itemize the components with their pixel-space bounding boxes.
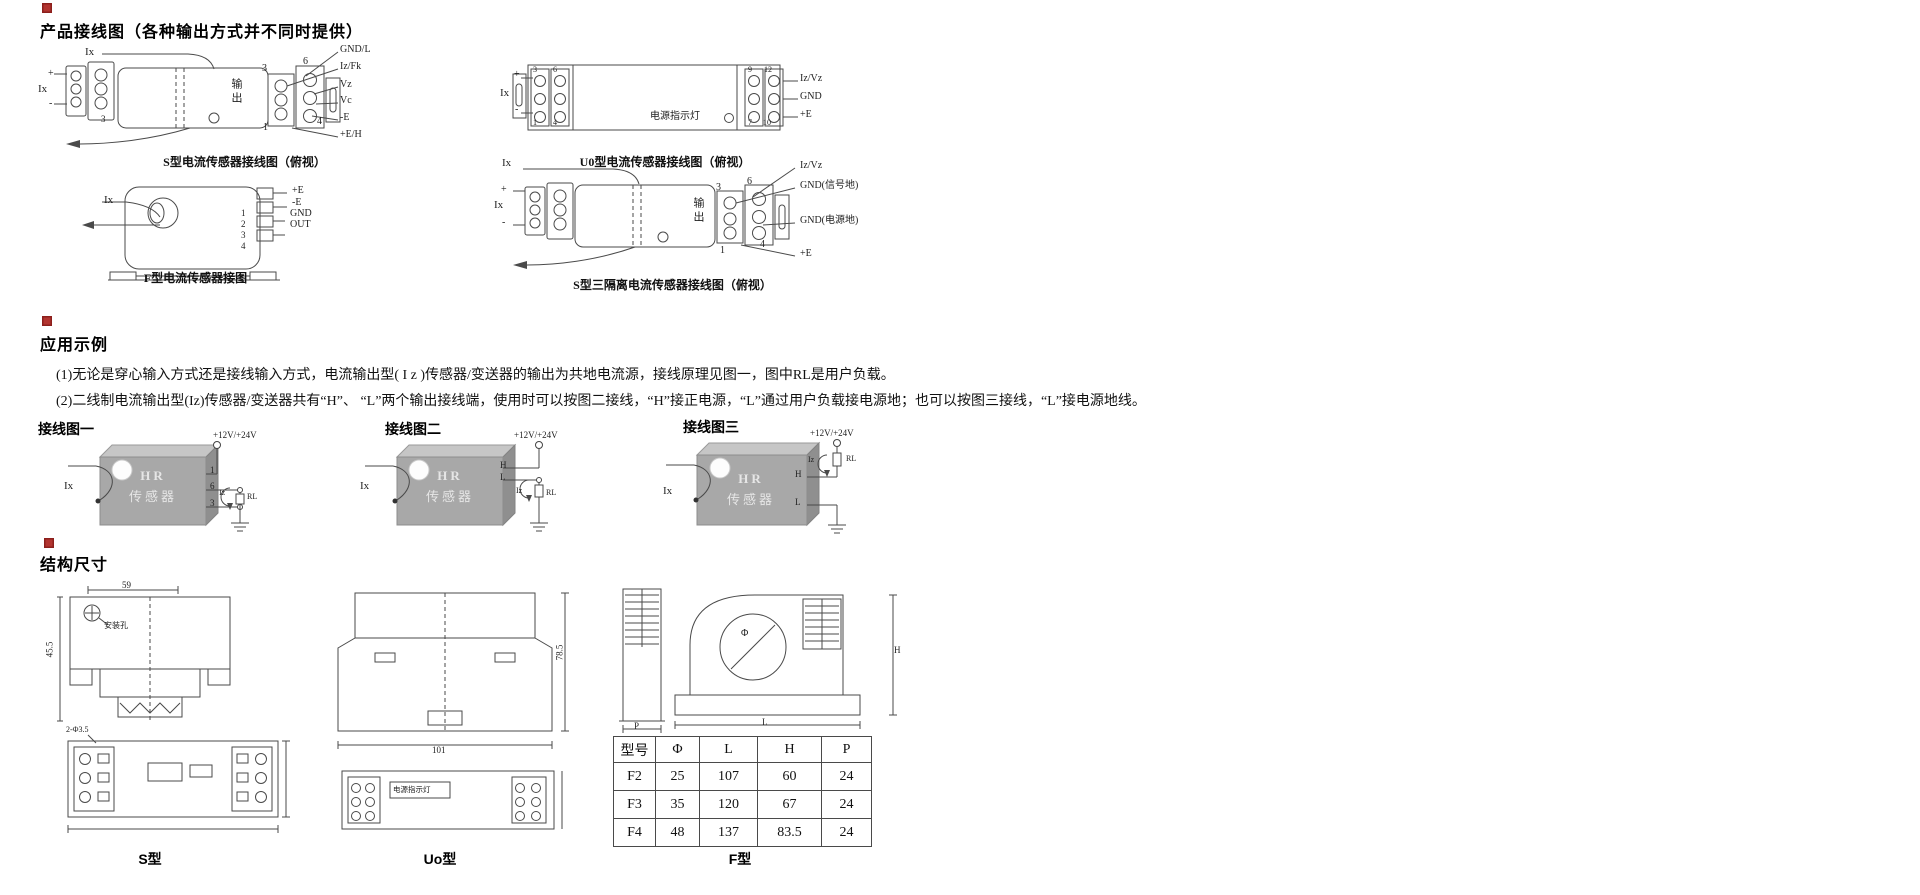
section-title-dimensions: 结构尺寸 xyxy=(40,551,108,575)
pin-label: 12 xyxy=(764,66,772,74)
output-current-label: Iz xyxy=(808,456,814,464)
terminal-label: -E xyxy=(340,113,349,123)
section-marker-icon xyxy=(44,538,54,548)
terminal-label: +E/H xyxy=(340,130,362,140)
current-input-label: Ix xyxy=(494,200,503,211)
minus-terminal-label: - xyxy=(502,218,505,228)
table-cell: F2 xyxy=(614,763,656,791)
pin-label: 6 xyxy=(747,177,752,187)
current-input-label: Ix xyxy=(663,486,672,497)
current-input-label: Ix xyxy=(360,481,369,492)
application-figure-1 xyxy=(60,430,310,548)
sensor-label: 传感器 xyxy=(708,493,794,506)
pin-label: 7 xyxy=(748,119,752,127)
plus-terminal-label: + xyxy=(48,69,54,79)
pin-label: 4 xyxy=(317,117,322,127)
table-cell: 24 xyxy=(822,791,872,819)
pin-label: 3 xyxy=(262,64,267,74)
pin-label: 1 xyxy=(241,209,246,218)
section-title-wiring: 产品接线图（各种输出方式并不同时提供） xyxy=(40,18,363,42)
s-type-dimension-drawing xyxy=(40,583,315,845)
pin-label: L xyxy=(795,498,801,507)
pin-label: 4 xyxy=(553,119,557,127)
dimension-table: 型号 Φ L H P F2 25 107 60 24 F3 35 120 67 … xyxy=(613,736,872,847)
table-cell: 35 xyxy=(656,791,700,819)
pin-label: 6 xyxy=(210,482,215,491)
hr-brand-label: HR xyxy=(716,472,786,485)
power-led-label: 电源指示灯 xyxy=(393,786,431,794)
pin-label: 6 xyxy=(303,57,308,67)
dimension-letter: P xyxy=(634,722,639,731)
power-supply-label: +12V/+24V xyxy=(213,431,257,440)
current-input-label: Ix xyxy=(502,158,511,169)
pin-label: L xyxy=(500,473,506,482)
dimension-letter: L xyxy=(762,718,768,727)
hr-brand-label: HR xyxy=(415,469,485,482)
pin-label: 1 xyxy=(263,123,268,133)
dimension-value: 78.5 xyxy=(555,645,564,661)
table-cell: 25 xyxy=(656,763,700,791)
column-header: L xyxy=(700,737,758,763)
terminal-label: Vc xyxy=(340,96,352,106)
output-current-label: Iz xyxy=(516,487,522,495)
terminal-label: +E xyxy=(800,249,812,259)
application-figure-3 xyxy=(660,425,920,547)
plus-terminal-label: + xyxy=(501,185,507,195)
terminal-label: +E xyxy=(292,186,304,196)
terminal-label: Iz/Fk xyxy=(340,62,361,72)
dimension-value: 101 xyxy=(432,746,446,755)
pin-label: 1 xyxy=(210,466,215,475)
table-cell: 137 xyxy=(700,819,758,847)
table-header-row: 型号 Φ L H P xyxy=(614,737,872,763)
diameter-symbol: Φ xyxy=(741,629,748,639)
pin-label: 3 xyxy=(533,66,537,74)
table-row: F3 35 120 67 24 xyxy=(614,791,872,819)
application-figure-2 xyxy=(355,430,605,548)
table-cell: 120 xyxy=(700,791,758,819)
table-cell: 24 xyxy=(822,819,872,847)
current-input-label: Ix xyxy=(104,195,113,206)
pin-label: 4 xyxy=(241,242,246,251)
table-cell: 48 xyxy=(656,819,700,847)
terminal-label: GND xyxy=(290,209,312,219)
table-cell: 24 xyxy=(822,763,872,791)
table-cell: 107 xyxy=(700,763,758,791)
section-marker-icon xyxy=(42,3,52,13)
application-paragraph-2: (2)二线制电流输出型(Iz)传感器/变送器共有“H”、 “L”两个输出接线端，… xyxy=(56,390,1146,410)
drawing-caption: F型 xyxy=(680,849,800,869)
hole-dimension-note: 2-Φ3.5 xyxy=(66,726,89,734)
minus-terminal-label: - xyxy=(49,99,52,109)
column-header: Φ xyxy=(656,737,700,763)
table-row: F4 48 137 83.5 24 xyxy=(614,819,872,847)
table-cell: 60 xyxy=(758,763,822,791)
minus-terminal-label: - xyxy=(515,105,518,115)
terminal-label: +E xyxy=(800,110,812,120)
current-input-label: Ix xyxy=(38,84,47,95)
terminal-label: GND xyxy=(800,92,822,102)
application-paragraph-1: (1)无论是穿心输入方式还是接线输入方式，电流输出型( I z )传感器/变送器… xyxy=(56,364,895,384)
pin-label: 3 xyxy=(210,499,215,508)
pin-label: H xyxy=(500,461,507,470)
diagram-caption: S型三隔离电流传感器接线图（俯视） xyxy=(550,276,795,293)
pin-label: 9 xyxy=(748,66,752,74)
column-header: P xyxy=(822,737,872,763)
table-cell: F3 xyxy=(614,791,656,819)
drawing-caption: S型 xyxy=(90,849,210,869)
column-header: 型号 xyxy=(614,737,656,763)
sensor-label: 传感器 xyxy=(110,490,196,503)
terminal-label: -E xyxy=(292,198,301,208)
column-header: H xyxy=(758,737,822,763)
hr-brand-label: HR xyxy=(118,469,188,482)
dimension-value: 45.5 xyxy=(45,642,54,658)
pin-label: 3 xyxy=(716,183,721,193)
current-input-label: Ix xyxy=(85,47,94,58)
terminal-label: GND(信号地) xyxy=(800,181,858,191)
pin-label: 1 xyxy=(533,119,537,127)
u0-type-wiring-diagram xyxy=(495,42,865,170)
table-row: F2 25 107 60 24 xyxy=(614,763,872,791)
uo-type-dimension-drawing xyxy=(320,583,610,845)
table-cell: 83.5 xyxy=(758,819,822,847)
drawing-caption: Uo型 xyxy=(380,849,500,869)
pin-label: 3 xyxy=(101,115,106,124)
terminal-label: Iz/Vz xyxy=(800,74,822,84)
power-led-label: 电源指示灯 xyxy=(650,112,700,122)
datasheet-page: 产品接线图（各种输出方式并不同时提供） Ix + Ix - 3 输出 3 1 6… xyxy=(0,0,1920,895)
output-current-label: Iz xyxy=(219,489,225,497)
pin-label: 6 xyxy=(553,66,557,74)
load-resistor-label: RL xyxy=(247,493,257,501)
section-marker-icon xyxy=(42,316,52,326)
power-supply-label: +12V/+24V xyxy=(810,429,854,438)
power-supply-label: +12V/+24V xyxy=(514,431,558,440)
mounting-hole-note: 安装孔 xyxy=(104,622,128,630)
terminal-label: Iz/Vz xyxy=(800,161,822,171)
terminal-label: GND/L xyxy=(340,45,371,55)
dimension-letter: H xyxy=(894,646,901,655)
pin-label: H xyxy=(795,470,802,479)
terminal-label: Vz xyxy=(340,80,352,90)
section-title-application: 应用示例 xyxy=(40,331,108,355)
diagram-caption: F型电流传感器接图 xyxy=(98,269,293,286)
f-type-dimension-drawing xyxy=(605,583,915,733)
output-label: 输出 xyxy=(692,197,703,225)
plus-terminal-label: + xyxy=(514,70,520,80)
pin-label: 3 xyxy=(241,231,246,240)
dimension-value: 59 xyxy=(122,581,131,590)
sensor-label: 传感器 xyxy=(407,490,493,503)
diagram-caption: S型电流传感器接线图（俯视） xyxy=(122,153,367,170)
table-cell: 67 xyxy=(758,791,822,819)
table-cell: F4 xyxy=(614,819,656,847)
pin-label: 1 xyxy=(720,246,725,256)
load-resistor-label: RL xyxy=(846,455,856,463)
load-resistor-label: RL xyxy=(546,489,556,497)
pin-label: 4 xyxy=(760,240,765,250)
terminal-label: OUT xyxy=(290,220,311,230)
current-input-label: Ix xyxy=(64,481,73,492)
output-label: 输出 xyxy=(230,78,241,106)
pin-label: 10 xyxy=(763,119,771,127)
terminal-label: GND(电源地) xyxy=(800,216,858,226)
current-input-label: Ix xyxy=(500,88,509,99)
pin-label: 2 xyxy=(241,220,246,229)
